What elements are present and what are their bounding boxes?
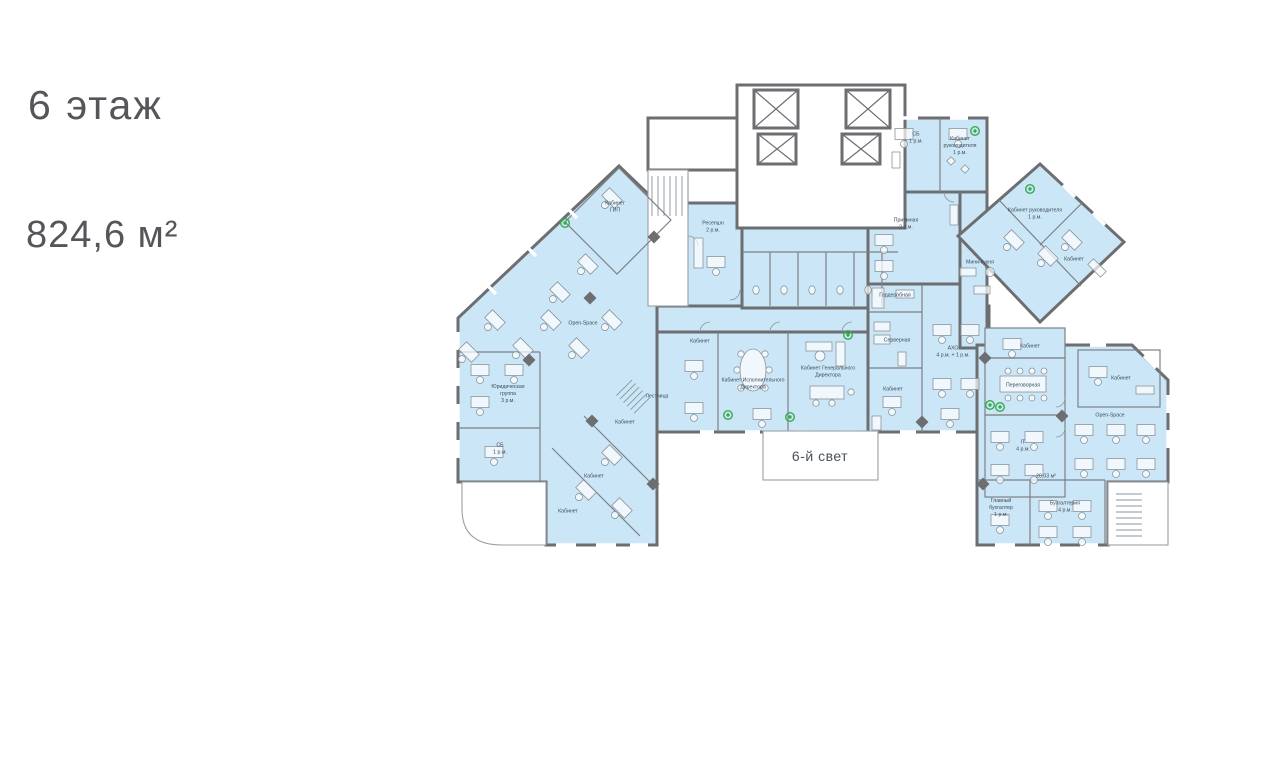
- room-label: Главный бухгалтер 1 р.м.: [989, 498, 1013, 518]
- room-label: Кабинет: [558, 509, 578, 516]
- room-label: Open-Space: [1095, 413, 1124, 420]
- room-label: Кабинет: [615, 420, 635, 427]
- room-label: Приемная 2 р.м.: [894, 217, 919, 231]
- room-label: Open-Space: [568, 321, 597, 328]
- light-well-label: 6-й свет: [792, 448, 848, 464]
- room-label: Серверная: [884, 338, 911, 345]
- room-label: Юридическая группа 3 р.м.: [491, 384, 524, 404]
- floor-plan-drawing: [0, 0, 1283, 779]
- room-label: Гардеробная: [879, 293, 910, 300]
- room-label: Кабинет: [584, 474, 604, 481]
- room-label: СБ 1 р.м.: [493, 442, 507, 456]
- room-label: Кабинет руководителя 1 р.м.: [944, 136, 977, 156]
- room-label: Кабинет: [690, 339, 710, 346]
- room-label: Ресепшн 2 р.м.: [702, 220, 723, 234]
- room-label: Лестница: [646, 394, 669, 401]
- room-label: Кабинет руководителя 1 р.м.: [1008, 207, 1062, 221]
- room-label: Кабинет: [1111, 376, 1131, 383]
- room-label: Кабинет: [1064, 257, 1084, 264]
- room-label: Мини-кухня: [966, 260, 994, 267]
- room-label: Кабинет: [883, 387, 903, 394]
- room-label: Кабинет Исполнительного Директора: [721, 377, 784, 391]
- room-label: СБ 1 р.м.: [909, 131, 923, 145]
- room-label: Кабинет ГИП: [605, 200, 625, 214]
- room-label: Переговорная: [1006, 383, 1040, 390]
- room-label: Кабинет Генерального Директора: [801, 365, 855, 379]
- room-label: Бухгалтерия 4 р.м.: [1050, 500, 1080, 514]
- floor-plan-page: 6 этаж 824,6 м²: [0, 0, 1283, 779]
- room-label: 20,03 м²: [1036, 474, 1056, 481]
- room-label: АХО 4 р.м. + 1 р.м.: [936, 345, 969, 359]
- room-label: Кабинет: [1020, 344, 1040, 351]
- room-label: IT 4 р.м.: [1016, 439, 1030, 453]
